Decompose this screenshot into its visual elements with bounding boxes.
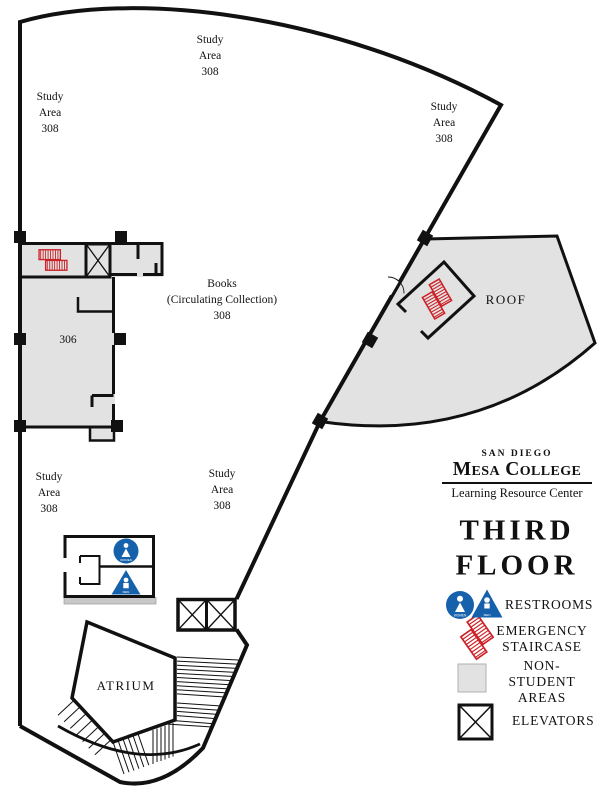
logo-line-mesa-college: Mesa College	[442, 459, 592, 484]
legend-label-restrooms: RESTROOMS	[505, 597, 593, 613]
svg-text:WOMEN: WOMEN	[120, 558, 132, 562]
study-area-label-bottom-left: Study Area 308	[36, 470, 63, 518]
logo-line-san-diego: SAN DIEGO	[442, 449, 592, 459]
svg-text:WOMEN: WOMEN	[454, 614, 467, 618]
legend-label-non-student-areas: NON-STUDENT AREAS	[507, 658, 577, 706]
legend-label-elevators: ELEVATORS	[512, 713, 594, 729]
legend-staircase-icon	[456, 615, 498, 659]
roof-area	[320, 236, 595, 426]
books-collection-label: Books (Circulating Collection) 308	[167, 277, 277, 325]
legend-women-restroom-icon: WOMEN	[446, 591, 474, 619]
room-306-label: 306	[59, 333, 76, 349]
floor-title: THIRD FLOOR	[455, 514, 578, 585]
twin-elevator-icon	[178, 600, 235, 631]
floor-plan-page: WOMEN MEN WOMEN MEN Study Area 3	[0, 0, 612, 792]
restroom-block-threshold	[64, 598, 156, 605]
legend-men-restroom-icon: MEN	[472, 590, 503, 618]
small-room-area	[90, 427, 114, 441]
legend-non-student-swatch	[458, 664, 486, 692]
college-logo: SAN DIEGO Mesa College Learning Resource…	[442, 449, 592, 501]
svg-text:MEN: MEN	[123, 590, 130, 594]
women-restroom-icon: WOMEN	[114, 539, 139, 564]
men-restroom-icon: MEN	[112, 570, 141, 595]
legend-label-emergency-staircase: EMERGENCY STAIRCASE	[496, 623, 587, 655]
study-area-label-bottom-mid: Study Area 308	[209, 467, 236, 515]
study-area-label-left: Study Area 308	[37, 90, 64, 138]
restroom-icons: WOMEN MEN WOMEN MEN	[112, 539, 503, 620]
study-area-label-right: Study Area 308	[431, 100, 458, 148]
study-area-label-top: Study Area 308	[197, 33, 224, 81]
logo-line-lrc: Learning Resource Center	[442, 484, 592, 501]
svg-text:MEN: MEN	[484, 613, 491, 617]
roof-label: ROOF	[486, 291, 527, 309]
room-306-area	[20, 277, 115, 427]
legend-elevator-icon	[459, 705, 492, 739]
atrium-label: ATRIUM	[97, 677, 156, 695]
